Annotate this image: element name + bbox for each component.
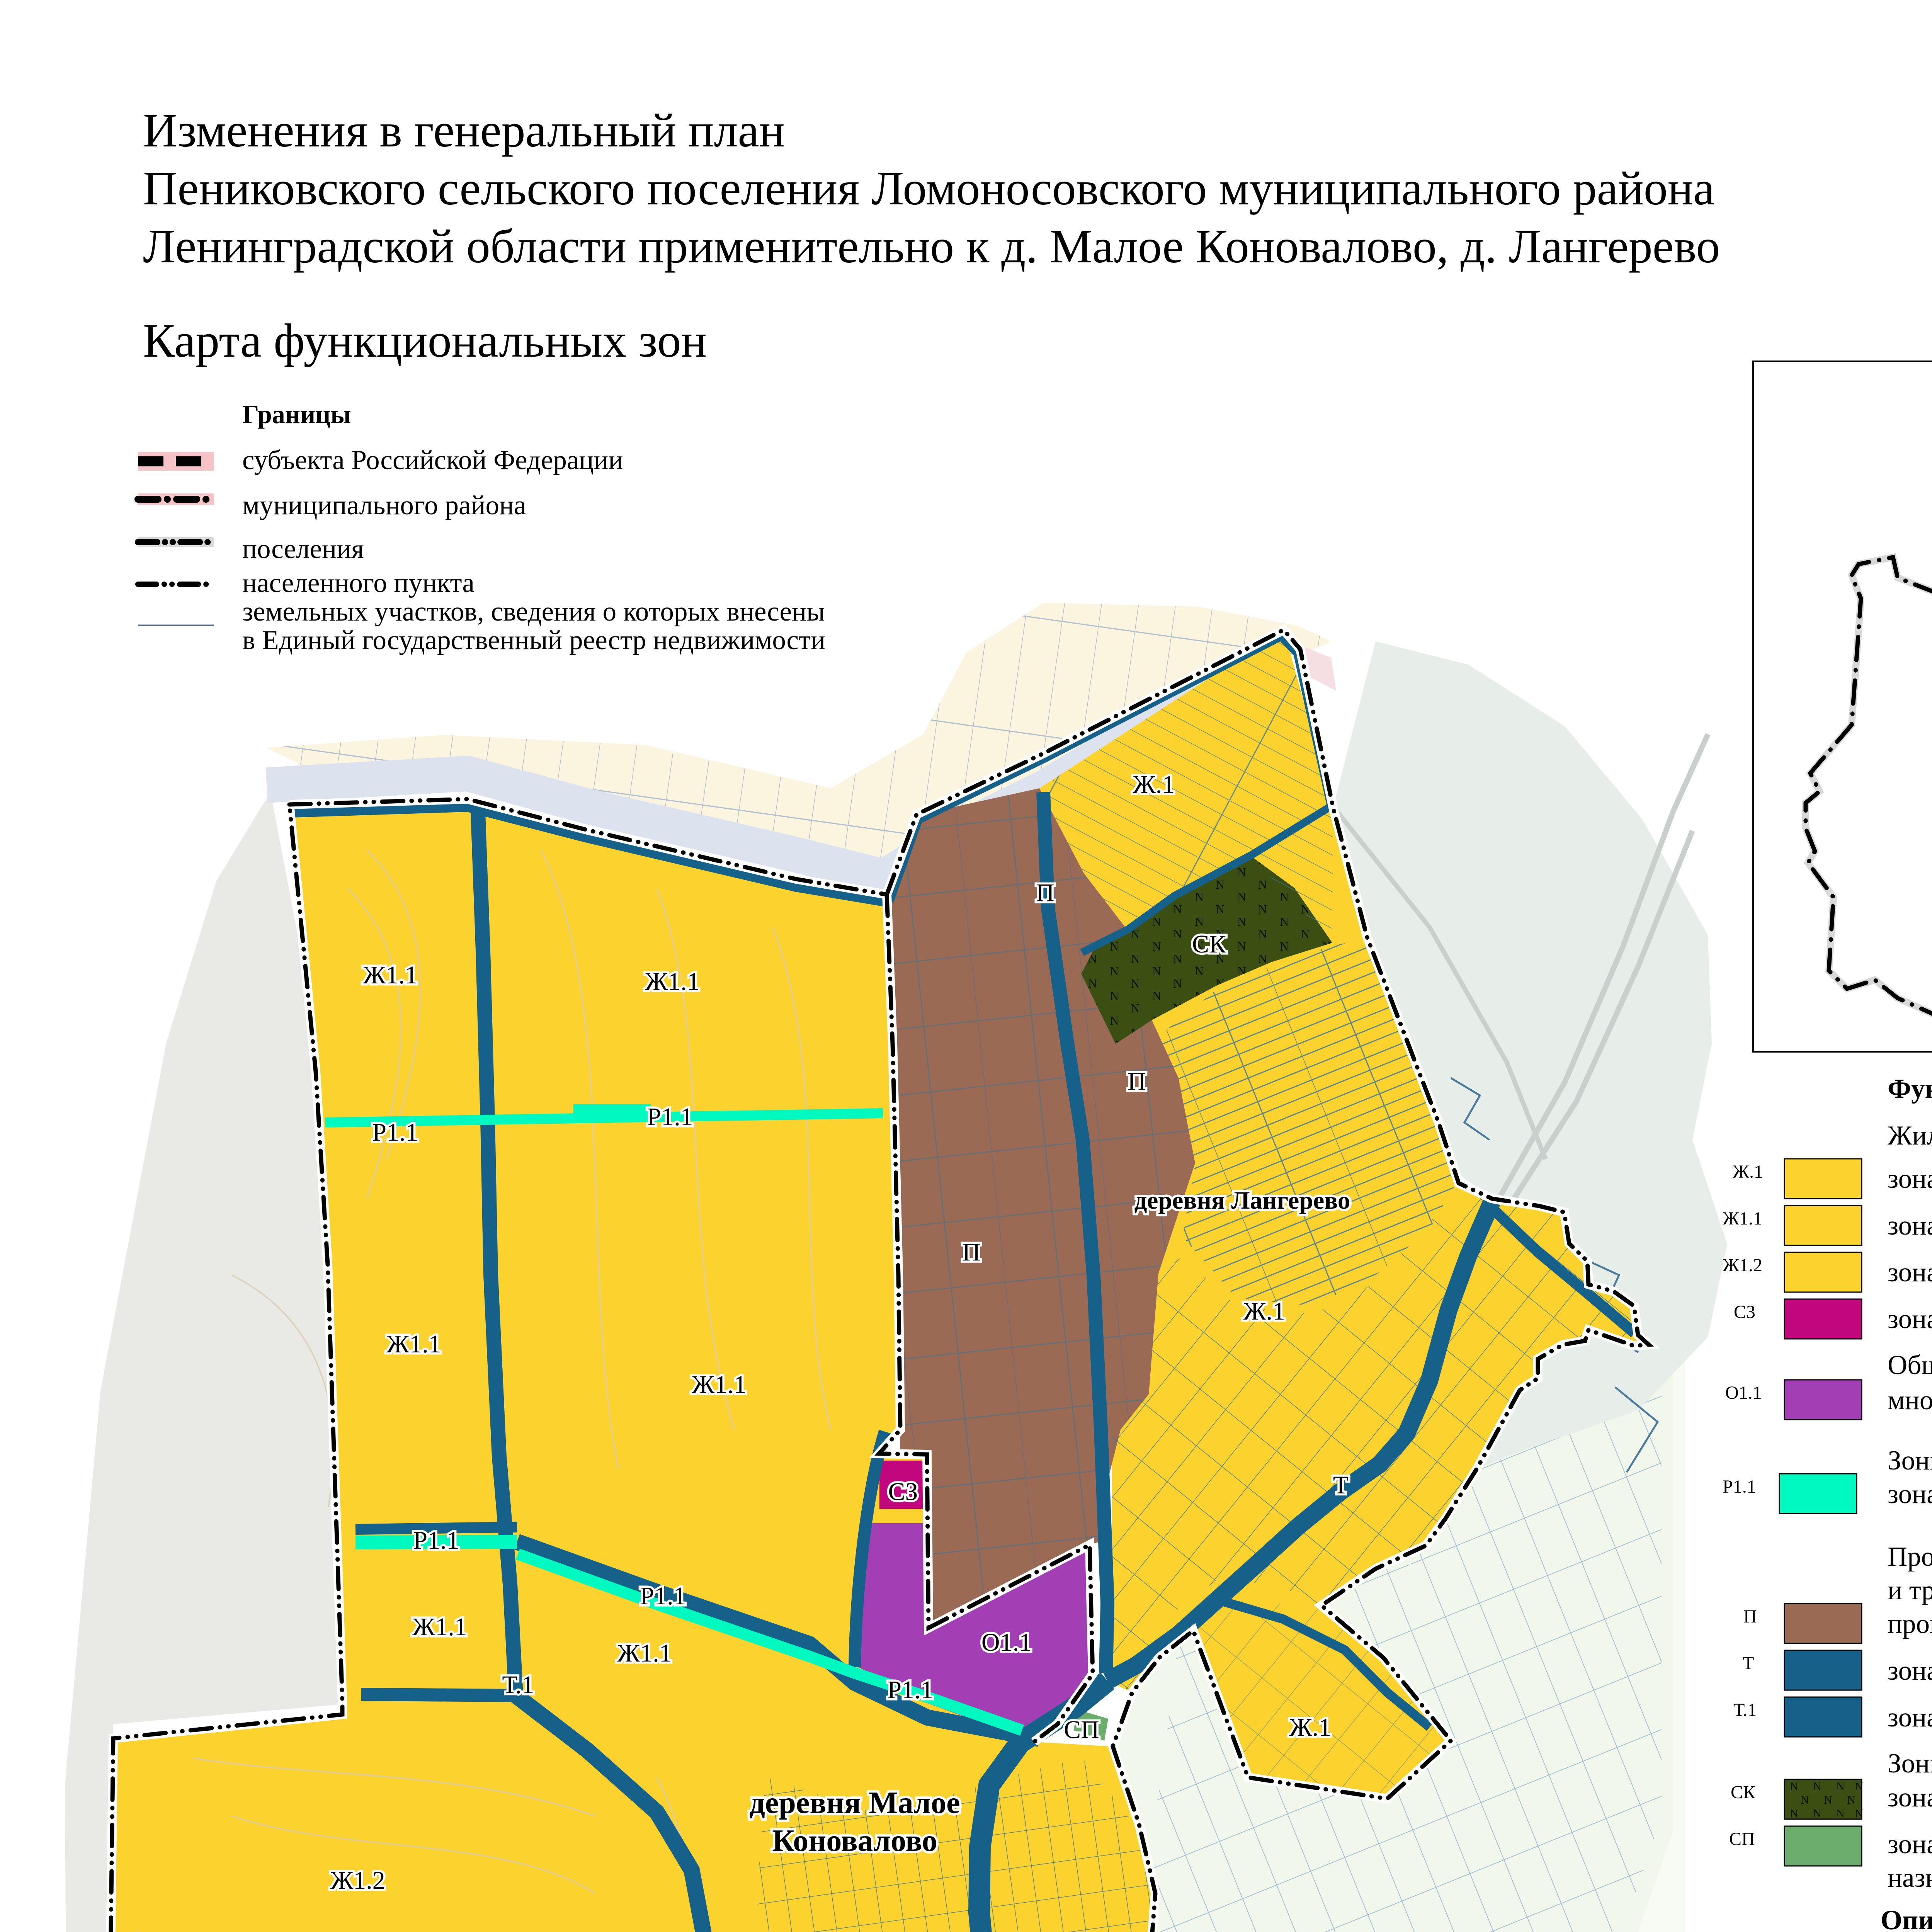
svg-text:N: N [1813,1807,1821,1820]
svg-text:N: N [1790,1780,1798,1793]
svg-text:N: N [1836,1807,1845,1820]
svg-text:N: N [1847,1794,1855,1806]
svg-text:N: N [1801,1794,1809,1806]
svg-text:N: N [1813,1780,1821,1793]
svg-text:N: N [1790,1807,1798,1820]
svg-text:N: N [1824,1794,1832,1806]
svg-text:N: N [1855,1780,1863,1793]
svg-text:N: N [1855,1807,1863,1820]
svg-text:N: N [1836,1780,1845,1793]
